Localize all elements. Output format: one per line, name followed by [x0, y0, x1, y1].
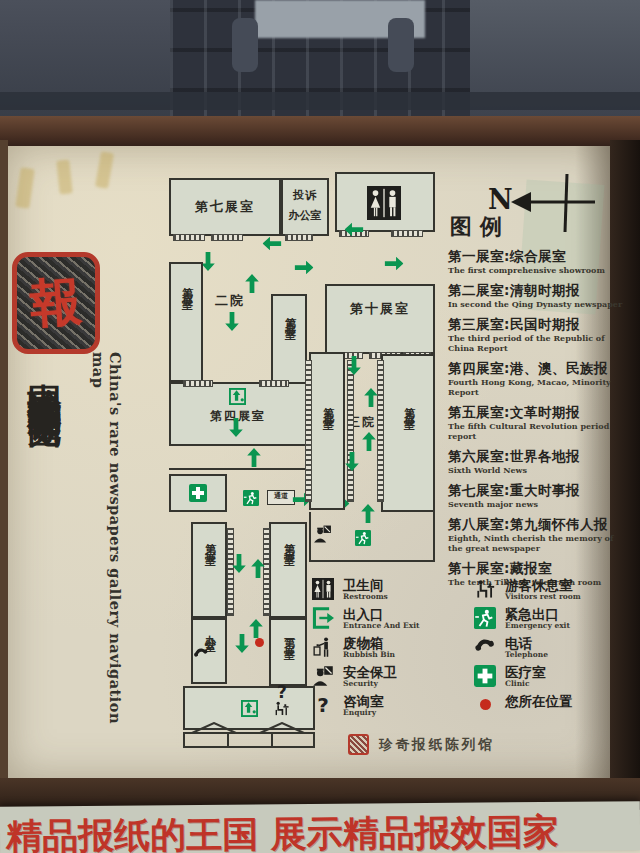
wall-segment	[309, 512, 311, 562]
legend-en: Enquiry	[343, 708, 384, 717]
slogan-banner: 精品报纸的王国 展示精品报效国家	[0, 801, 640, 853]
window-mark	[285, 234, 313, 241]
legend-item: 第六展室:世界各地报Sixth World News	[448, 448, 628, 475]
room-8-label: 第八展室	[401, 398, 416, 414]
wall-segment	[271, 734, 273, 746]
legend-item-zh: 第三展室:民国时期报	[448, 316, 628, 333]
legend-item-zh: 第八展室:第九缅怀伟人报	[448, 516, 628, 533]
window-mark	[259, 380, 289, 387]
legend-list: 第一展室:综合展室The first comprehensive showroo…	[448, 248, 628, 594]
symbol-legend-right-column: 游客休息室Visitors rest room 紧急出口Emergency ex…	[474, 578, 640, 723]
route-arrow-left	[347, 220, 361, 239]
legend-item-zh: 第二展室:清朝时期报	[448, 282, 628, 299]
background-right-pillar	[470, 0, 640, 132]
room-3: 第三展室	[269, 522, 307, 618]
room-2: 第二展室	[191, 522, 227, 618]
office-label: 办公室	[202, 626, 217, 635]
legend-item-zh: 第十展室:藏报室	[448, 560, 628, 577]
room-1: 第一展室	[269, 618, 307, 686]
legend-zh: 您所在位置	[505, 694, 573, 708]
route-arrow-down	[225, 312, 239, 331]
legend-en: Visitors rest room	[505, 592, 581, 601]
legend-item-en: The fifth Cultural Revolution period rep…	[448, 421, 628, 441]
legend-item-en: Seventh major news	[448, 499, 628, 509]
room-9: 第九展室	[309, 352, 345, 510]
legend-en: Restrooms	[343, 592, 388, 601]
page-title: 中国珍奇报纸陈列馆导览图	[22, 356, 68, 756]
legend-en: Telephone	[505, 650, 548, 659]
room-10-label: 第十展室	[327, 300, 433, 318]
clinic-cross-icon	[189, 484, 207, 502]
legend-item-en: Eighth, Ninth cherish the memory of the …	[448, 533, 628, 553]
legend-item-zh: 第七展室:重大时事报	[448, 482, 628, 499]
complaints-office-label: 投诉	[283, 188, 327, 203]
route-arrow-right	[387, 254, 401, 273]
newspaper-seal-stamp: 報	[12, 252, 100, 354]
background-door-rail	[0, 92, 640, 110]
legend-en: Emergency exit	[505, 621, 570, 630]
legend-zh: 出入口	[343, 607, 419, 621]
background-wall	[0, 0, 640, 132]
legend-item: 第二展室:清朝时期报In second the Qing Dynasty new…	[448, 282, 628, 309]
legend-zh: 废物箱	[343, 636, 395, 650]
legend-zh: 游客休息室	[505, 578, 581, 592]
legend-en: Clinic	[505, 679, 546, 688]
room-9-label: 第九展室	[320, 398, 335, 414]
legend-item-zh: 第四展室:港、澳、民族报	[448, 360, 628, 377]
lattice-ornament	[388, 18, 414, 72]
room-10: 第十展室	[325, 284, 435, 354]
route-arrow-down	[201, 252, 215, 271]
window-mark	[183, 380, 213, 387]
background-left-pillar	[0, 0, 170, 132]
room-3-label: 第三展室	[281, 534, 296, 550]
passage-label: 通道	[267, 490, 295, 505]
entrance-exit-icon	[241, 700, 258, 717]
legend-row-security: 安全保卫Security	[312, 665, 472, 687]
visitors-rest-icon	[474, 578, 496, 600]
window-mark	[377, 360, 384, 502]
window-mark	[305, 360, 312, 502]
telephone-icon	[471, 633, 499, 661]
route-arrow-up	[361, 504, 375, 523]
emergency-exit-icon	[355, 530, 371, 546]
enquiry-icon: ?	[312, 694, 334, 716]
enquiry-icon: ?	[277, 682, 287, 702]
route-arrow-left	[265, 234, 279, 253]
room-7: 第七展室	[169, 178, 281, 236]
mini-seal-icon	[348, 734, 369, 755]
room-5-label: 第五展室	[282, 308, 297, 324]
room-2-label: 第二展室	[202, 534, 217, 550]
legend-item-en: Fourth Hong Kong, Macao, Minority Report	[448, 377, 628, 397]
legend-item-zh: 第六展室:世界各地报	[448, 448, 628, 465]
route-arrow-up	[247, 448, 261, 467]
legend-zh: 医疗室	[505, 665, 546, 679]
footer-gallery-label: 珍奇报纸陈列馆	[379, 736, 495, 754]
you-are-here-dot	[255, 638, 264, 647]
exit-up-icon	[229, 388, 246, 405]
legend-zh: 咨询室	[343, 694, 384, 708]
legend-row-clinic: 医疗室Clinic	[474, 665, 640, 687]
legend-en: Entrance And Exit	[343, 621, 419, 630]
legend-item: 第八展室:第九缅怀伟人报Eighth, Ninth cherish the me…	[448, 516, 628, 553]
route-arrow-up	[362, 432, 376, 451]
lattice-ornament	[232, 18, 258, 72]
legend-item-en: In second the Qing Dynasty newspaper	[448, 299, 628, 309]
security-icon	[312, 665, 334, 687]
legend-item-zh: 第一展室:综合展室	[448, 248, 628, 265]
legend-row-rubbish-bin: 废物箱Rubbish Bin	[312, 636, 472, 658]
route-arrow-up	[251, 559, 265, 578]
wall-segment	[227, 734, 229, 746]
legend-row-emergency-exit: 紧急出口Emergency exit	[474, 607, 640, 629]
courtyard-2-label: 二院	[215, 292, 245, 310]
legend-item-en: The first comprehensive showroom	[448, 265, 628, 275]
route-arrow-right	[297, 258, 311, 277]
room-6: 第六展室	[169, 262, 203, 382]
legend-en: Security	[343, 679, 397, 688]
frame-top-bar	[0, 116, 640, 146]
wall-segment	[169, 468, 309, 470]
legend-item-zh: 第五展室:文革时期报	[448, 404, 628, 421]
seal-character: 報	[28, 266, 85, 339]
window-mark	[391, 230, 423, 237]
legend-item: 第四展室:港、澳、民族报Fourth Hong Kong, Macao, Min…	[448, 360, 628, 397]
route-arrow-up	[249, 619, 263, 638]
frame-left-bar	[0, 140, 8, 790]
page-title-english: China's rare newspapers gallery navigati…	[90, 352, 124, 757]
wall-segment	[309, 560, 435, 562]
compass-arrow-icon	[505, 170, 615, 234]
route-arrow-down	[235, 634, 249, 653]
complaints-office-label: 办公室	[283, 208, 327, 223]
clinic-room	[169, 474, 227, 512]
legend-row-entrance: 出入口Entrance And Exit	[312, 607, 472, 629]
window-mark	[173, 234, 205, 241]
legend-item: 第三展室:民国时期报The third period of the Republ…	[448, 316, 628, 353]
legend-zh: 卫生间	[343, 578, 388, 592]
route-arrow-up	[245, 274, 259, 293]
legend-item: 第五展室:文革时期报The fifth Cultural Revolution …	[448, 404, 628, 441]
signboard-photo: 報 中国珍奇报纸陈列馆导览图 China's rare newspapers g…	[0, 0, 640, 853]
route-arrow-down	[229, 418, 243, 437]
you-are-here-dot	[474, 694, 496, 716]
clinic-cross-icon	[474, 665, 496, 687]
route-arrow-up	[364, 388, 378, 407]
legend-item-en: The third period of the Republic of Chin…	[448, 333, 628, 353]
legend-row-restrooms: 卫生间Restrooms	[312, 578, 472, 600]
legend-row-telephone: 电话Telephone	[474, 636, 640, 658]
legend-en: Rubbish Bin	[343, 650, 395, 659]
window-mark	[211, 234, 243, 241]
legend-zh: 电话	[505, 636, 548, 650]
symbol-legend-left-column: 卫生间Restrooms 出入口Entrance And Exit 废物箱Rub…	[312, 578, 472, 723]
legend-item: 第七展室:重大时事报Seventh major news	[448, 482, 628, 509]
emergency-exit-icon	[474, 607, 496, 629]
security-icon	[313, 524, 332, 544]
room-8: 第八展室	[381, 354, 435, 512]
room-1-label: 第一展室	[281, 628, 296, 644]
wall-segment	[433, 512, 435, 562]
slogan-text: 精品报纸的王国 展示精品报效国家	[6, 807, 636, 853]
legend-title: 图例	[450, 212, 510, 242]
legend-zh: 安全保卫	[343, 665, 397, 679]
legend-row-you-are-here: 您所在位置	[474, 694, 640, 716]
legend-row-enquiry: ? 咨询室Enquiry	[312, 694, 472, 716]
window-mark	[347, 360, 354, 502]
room-7-label: 第七展室	[171, 198, 279, 216]
entrance-exit-icon	[312, 607, 334, 629]
entrance-steps	[183, 732, 315, 748]
room-6-label: 第六展室	[179, 278, 194, 294]
legend-item: 第一展室:综合展室The first comprehensive showroo…	[448, 248, 628, 275]
visitors-rest-icon	[273, 700, 290, 717]
route-arrow-down	[347, 356, 361, 375]
legend-row-visitors-rest: 游客休息室Visitors rest room	[474, 578, 640, 600]
complaints-office: 投诉 办公室	[281, 178, 329, 236]
restrooms-icon	[312, 578, 334, 600]
legend-zh: 紧急出口	[505, 607, 570, 621]
rubbish-bin-icon	[312, 636, 334, 658]
restroom-icon	[367, 186, 401, 220]
route-arrow-down	[345, 452, 359, 471]
emergency-exit-icon	[243, 490, 259, 506]
route-arrow-down	[232, 554, 246, 573]
footer-gallery-mark: 珍奇报纸陈列馆	[348, 734, 495, 755]
legend-item-en: Sixth World News	[448, 465, 628, 475]
